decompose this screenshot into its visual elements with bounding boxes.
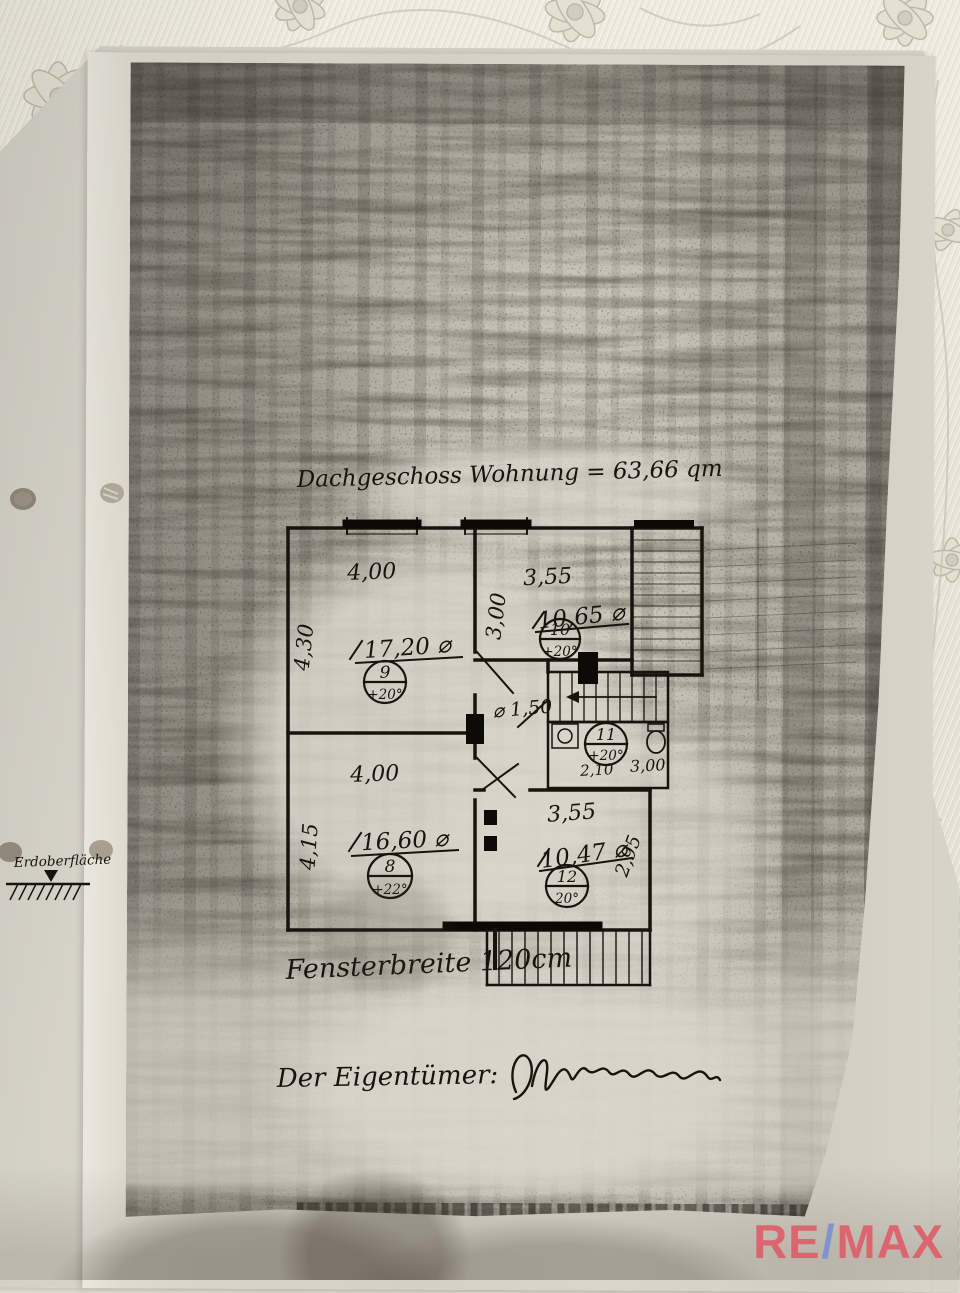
room-12-width-dim: 3,55 [546, 799, 597, 827]
owner-signature [512, 1055, 720, 1099]
room-9-depth-dim: 4,30 [290, 623, 319, 673]
staircase [548, 672, 668, 722]
window-width-note: Fensterbreite 120cm [284, 943, 573, 987]
room-8-depth-dim: 4,15 [295, 822, 322, 871]
ground-level-label: Erdoberfläche [13, 852, 112, 871]
room-10-number: 10 [550, 620, 570, 639]
room-9-width-dim: 4,00 [346, 559, 397, 586]
room-9-number: 9 [380, 663, 391, 683]
walls [288, 528, 702, 930]
punch-hole-inner [14, 492, 32, 506]
remax-re: RE [753, 1215, 820, 1268]
ground-level-triangle [44, 870, 58, 882]
door-swings [477, 652, 548, 797]
roof-dashes [706, 543, 856, 669]
room-10-depth-dim: 3,00 [481, 591, 511, 640]
remax-watermark: RE/MAX [753, 1214, 944, 1269]
hall-clear-width: ⌀ 1,50 [492, 695, 553, 722]
remax-slash-icon: / [820, 1215, 836, 1268]
owner-label: Der Eigentümer: [276, 1060, 499, 1094]
punch-holes [0, 483, 124, 862]
remax-max: MAX [837, 1215, 944, 1268]
room-9-temp: +20° [367, 687, 402, 703]
ground-hatching [10, 884, 81, 900]
plan-title: Dachgeschoss Wohnung = 63,66 qm [295, 456, 722, 493]
room-8-temp: +22° [372, 882, 407, 898]
photo-of-floorplan-document: { "annotations": { "title": "Dachgeschos… [0, 0, 960, 1280]
shower-drain [558, 729, 572, 743]
room-10-temp: +20° [542, 644, 577, 660]
room-8-number: 8 [385, 857, 396, 877]
room-12-temp: 20° [554, 891, 579, 907]
room-11-depth-dim: 3,00 [629, 755, 666, 776]
room-8-area: 16,60 ⌀ [361, 826, 451, 857]
toilet-icon [647, 731, 665, 753]
room-10-width-dim: 3,55 [523, 564, 573, 592]
room-11-number: 11 [596, 725, 616, 744]
room-8-width-dim: 4,00 [349, 761, 400, 788]
floor-plan-layer: 4,00 4,30 17,20 ⌀ 9 +20° 3,55 3,00 10,65… [0, 0, 960, 1280]
shower-icon [552, 724, 578, 748]
roof-hatch [634, 540, 700, 661]
toilet-tank [648, 724, 664, 731]
room-12-number: 12 [557, 867, 577, 886]
room-11-width-dim: 2,10 [579, 760, 615, 780]
ground-level-marker: Erdoberfläche [6, 852, 112, 900]
punch-hole [100, 483, 124, 503]
